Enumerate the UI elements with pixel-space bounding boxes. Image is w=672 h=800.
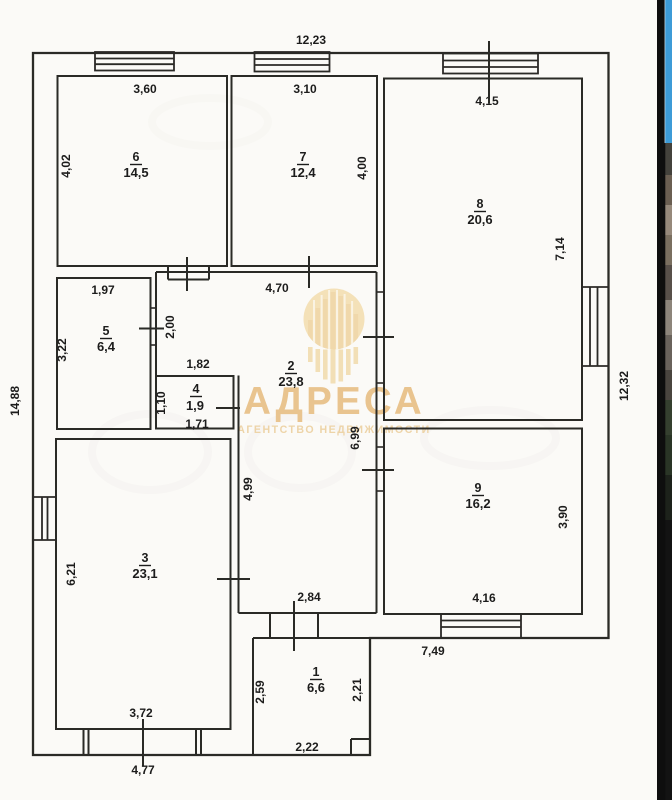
svg-text:4: 4: [193, 382, 200, 396]
svg-text:АГЕНТСТВО НЕДВИЖИМОСТИ: АГЕНТСТВО НЕДВИЖИМОСТИ: [237, 424, 431, 436]
svg-text:9: 9: [475, 481, 482, 495]
svg-text:23,8: 23,8: [278, 374, 303, 389]
svg-text:1,9: 1,9: [186, 398, 204, 413]
svg-text:4,02: 4,02: [59, 154, 73, 178]
svg-text:3: 3: [142, 551, 149, 565]
svg-text:12,4: 12,4: [290, 165, 316, 180]
svg-text:3,22: 3,22: [55, 338, 69, 362]
svg-text:16,2: 16,2: [465, 496, 490, 511]
svg-text:4,99: 4,99: [241, 477, 255, 501]
svg-text:1,71: 1,71: [185, 417, 209, 431]
svg-text:АДРЕСА: АДРЕСА: [243, 380, 425, 423]
svg-text:2,84: 2,84: [297, 590, 321, 604]
svg-text:20,6: 20,6: [467, 212, 492, 227]
svg-text:4,70: 4,70: [265, 281, 289, 295]
svg-text:4,15: 4,15: [475, 94, 499, 108]
svg-text:6: 6: [133, 150, 140, 164]
svg-text:6,99: 6,99: [348, 426, 362, 450]
svg-text:14,88: 14,88: [8, 386, 22, 416]
svg-text:3,60: 3,60: [133, 82, 157, 96]
svg-text:2,22: 2,22: [295, 740, 319, 754]
svg-text:6,6: 6,6: [307, 680, 325, 695]
svg-text:23,1: 23,1: [132, 566, 157, 581]
svg-text:7: 7: [300, 150, 307, 164]
svg-text:1,97: 1,97: [91, 283, 115, 297]
svg-text:1: 1: [313, 665, 320, 679]
svg-text:4,16: 4,16: [472, 591, 496, 605]
svg-text:4,77: 4,77: [131, 763, 155, 777]
svg-text:7,14: 7,14: [553, 237, 567, 261]
svg-text:1,10: 1,10: [154, 391, 168, 415]
svg-text:12,32: 12,32: [617, 371, 631, 401]
svg-text:3,90: 3,90: [556, 505, 570, 529]
svg-text:12,23: 12,23: [296, 33, 326, 47]
svg-text:2: 2: [288, 359, 295, 373]
svg-text:2,21: 2,21: [350, 678, 364, 702]
svg-text:7,49: 7,49: [421, 644, 445, 658]
svg-text:2,59: 2,59: [253, 680, 267, 704]
svg-text:4,00: 4,00: [355, 156, 369, 180]
svg-text:3,10: 3,10: [293, 82, 317, 96]
svg-text:2,00: 2,00: [163, 315, 177, 339]
svg-text:3,72: 3,72: [129, 706, 153, 720]
svg-text:6,21: 6,21: [64, 562, 78, 586]
svg-text:1,82: 1,82: [186, 357, 210, 371]
svg-text:6,4: 6,4: [97, 339, 116, 354]
svg-text:8: 8: [477, 197, 484, 211]
svg-text:5: 5: [103, 324, 110, 338]
svg-text:14,5: 14,5: [123, 165, 148, 180]
